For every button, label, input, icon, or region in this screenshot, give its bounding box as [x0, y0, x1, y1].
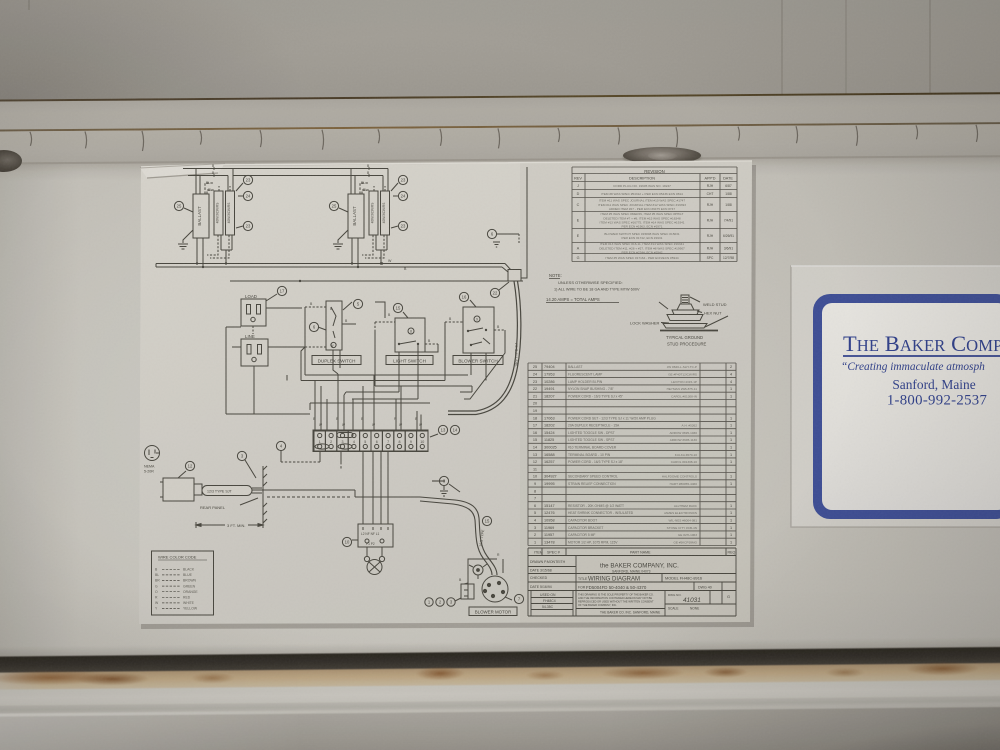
svg-text:7: 7 — [534, 497, 536, 501]
svg-text:LIGHTED TOGGLE SW - DPST: LIGHTED TOGGLE SW - DPST — [568, 431, 615, 435]
svg-text:HEX NUT: HEX NUT — [704, 311, 722, 316]
svg-text:PER ECN #1963, ECN #1971: PER ECN #1963, ECN #1971 — [622, 225, 663, 229]
svg-text:UNLESS OTHERWISE SPECIFIED:: UNLESS OTHERWISE SPECIFIED: — [558, 280, 623, 285]
svg-text:1/88: 1/88 — [725, 192, 732, 196]
svg-text:ITEM #8 WAS SPEC #54312 + PER: ITEM #8 WAS SPEC #54312 + PER ECN #5436 … — [601, 192, 683, 196]
svg-text:12: 12 — [188, 464, 193, 469]
svg-text:18: 18 — [533, 416, 537, 420]
svg-text:20A DUPLEX RECEPTACLE - 15A: 20A DUPLEX RECEPTACLE - 15A — [568, 424, 620, 428]
svg-text:18/3 TYPE SJ: 18/3 TYPE SJ — [515, 343, 519, 367]
svg-text:40W/3/CW/RS: 40W/3/CW/RS — [371, 203, 375, 224]
svg-text:B: B — [336, 417, 338, 421]
svg-text:A.H. #5262: A.H. #5262 — [682, 424, 698, 428]
svg-text:SECONDARY SPEED CONTROL: SECONDARY SPEED CONTROL — [568, 475, 618, 479]
svg-text:1: 1 — [730, 424, 732, 428]
svg-text:1: 1 — [730, 533, 732, 537]
svg-text:DUPLEX SWITCH: DUPLEX SWITCH — [318, 358, 356, 363]
svg-text:25: 25 — [533, 365, 537, 369]
svg-text:19491: 19491 — [544, 387, 555, 391]
svg-text:15147: 15147 — [544, 504, 555, 508]
svg-text:BLOWER MOTOR: BLOWER MOTOR — [475, 610, 512, 615]
svg-text:WIL-NES #6004-081: WIL-NES #6004-081 — [668, 519, 697, 523]
svg-text:#10 TERMINAL BOARD COVER: #10 TERMINAL BOARD COVER — [568, 446, 617, 450]
svg-text:MODEL FH48C-8916: MODEL FH48C-8916 — [665, 576, 702, 581]
svg-text:40W/3/CW/RS: 40W/3/CW/RS — [227, 203, 231, 224]
svg-text:ITEM #5 WAS SPEC #17164 - PER: ITEM #5 WAS SPEC #17164 - PER ECN/ECN #5… — [605, 256, 679, 260]
svg-text:POWER CORD - 16/3 TYPE SJ x 18: POWER CORD - 16/3 TYPE SJ x 18" — [568, 460, 624, 464]
svg-text:BL: BL — [155, 573, 159, 577]
svg-text:WELD STUD: WELD STUD — [703, 302, 727, 307]
svg-text:POWER CORD - 16/3 TYPE SJ x 45: POWER CORD - 16/3 TYPE SJ x 45" — [568, 394, 624, 398]
svg-text:16257: 16257 — [544, 460, 555, 464]
svg-text:300025: 300025 — [544, 446, 557, 450]
svg-text:18207: 18207 — [544, 394, 555, 398]
svg-text:11969: 11969 — [544, 526, 554, 530]
svg-text:LIGHTED TOGGLE SW - SPST: LIGHTED TOGGLE SW - SPST — [568, 438, 615, 442]
svg-text:ORANGE: ORANGE — [183, 590, 198, 594]
svg-text:HART #80055-4460: HART #80055-4460 — [670, 482, 698, 486]
svg-text:DESCRIPTION: DESCRIPTION — [629, 177, 655, 181]
svg-text:DATE 3/15/68: DATE 3/15/68 — [530, 569, 552, 573]
svg-text:RESISTOR - 20K OHMS @ 1/2 WATT: RESISTOR - 20K OHMS @ 1/2 WATT — [568, 504, 624, 508]
svg-text:TYPICAL GROUND: TYPICAL GROUND — [666, 335, 703, 340]
svg-text:TERMINAL BOARD - 10 PIN: TERMINAL BOARD - 10 PIN — [568, 453, 611, 457]
svg-text:RJH: RJH — [707, 234, 714, 238]
svg-text:the BAKER COMPANY, INC.: the BAKER COMPANY, INC. — [600, 563, 679, 570]
svg-text:23: 23 — [246, 224, 251, 229]
svg-text:YELLOW: YELLOW — [183, 607, 198, 611]
svg-text:10: 10 — [420, 440, 424, 444]
svg-text:SPEC #: SPEC # — [547, 550, 560, 554]
svg-text:JW #846-L-SLH-TC-P: JW #846-L-SLH-TC-P — [667, 365, 697, 369]
svg-text:DRAWN P.MONTEITH: DRAWN P.MONTEITH — [530, 560, 566, 564]
svg-text:Sanford, Maine: Sanford, Maine — [892, 377, 975, 392]
svg-text:23: 23 — [533, 380, 537, 384]
svg-text:14: 14 — [453, 428, 458, 433]
svg-text:1: 1 — [534, 540, 536, 544]
svg-text:1: 1 — [730, 394, 732, 398]
svg-text:16: 16 — [462, 295, 467, 300]
svg-text:4: 4 — [534, 519, 536, 523]
svg-text:BLUE: BLUE — [183, 573, 193, 577]
svg-text:W: W — [419, 423, 422, 427]
svg-text:CAPACITOR BOOT: CAPACITOR BOOT — [568, 519, 597, 523]
svg-text:GE #5KCP39MG: GE #5KCP39MG — [673, 540, 697, 544]
svg-text:REV: REV — [574, 177, 582, 181]
svg-text:1: 1 — [730, 446, 732, 450]
svg-text:W: W — [399, 423, 402, 427]
svg-text:9: 9 — [410, 440, 412, 444]
svg-text:4: 4 — [730, 373, 732, 377]
svg-text:20: 20 — [533, 402, 537, 406]
svg-text:1: 1 — [730, 540, 732, 544]
svg-text:1: 1 — [730, 526, 732, 530]
svg-text:18202: 18202 — [544, 424, 555, 428]
svg-text:12476: 12476 — [544, 511, 555, 515]
svg-text:1-800-992-2537: 1-800-992-2537 — [887, 393, 987, 409]
svg-text:GE #27L1063: GE #27L1063 — [678, 533, 697, 537]
svg-text:6/26/91: 6/26/91 — [723, 234, 734, 238]
svg-text:9: 9 — [476, 318, 478, 322]
svg-text:MOTOR 1/2 HP, 1075 RPM, 115V: MOTOR 1/2 HP, 1075 RPM, 115V — [568, 540, 618, 544]
svg-text:1: 1 — [730, 519, 732, 523]
svg-text:BALLAST: BALLAST — [352, 206, 357, 226]
svg-text:21: 21 — [533, 394, 537, 398]
svg-text:1) ALL WIRE TO BE 18 GA AND TY: 1) ALL WIRE TO BE 18 GA AND TYPE MTW 600… — [554, 288, 640, 292]
svg-text:G: G — [155, 584, 158, 588]
svg-text:CAROL #01308-IN: CAROL #01308-IN — [671, 394, 697, 398]
svg-text:25: 25 — [332, 204, 337, 209]
svg-text:12/3 TYPE SJT: 12/3 TYPE SJT — [207, 490, 233, 494]
svg-text:1: 1 — [319, 440, 321, 444]
svg-text:3 FT. MIN.: 3 FT. MIN. — [227, 523, 245, 528]
svg-text:40W/3/CW/RS: 40W/3/CW/RS — [382, 203, 386, 224]
svg-text:15: 15 — [396, 306, 401, 311]
svg-text:14: 14 — [533, 446, 537, 450]
svg-text:CAPACITOR BRACKET: CAPACITOR BRACKET — [568, 526, 603, 530]
svg-text:NOTE:: NOTE: — [549, 273, 562, 278]
svg-text:LOCK WASHER: LOCK WASHER — [630, 321, 660, 326]
svg-text:BL: BL — [208, 188, 212, 192]
svg-text:CHECKED: CHECKED — [530, 576, 548, 580]
svg-text:W: W — [372, 423, 375, 427]
svg-text:PART NAME: PART NAME — [630, 550, 651, 554]
svg-text:1: 1 — [730, 511, 732, 515]
svg-text:REPRODUCED OR USED WITHOUT THE: REPRODUCED OR USED WITHOUT THE WRITTEN C… — [578, 600, 654, 604]
svg-text:BL: BL — [361, 181, 365, 185]
svg-text:24: 24 — [533, 373, 537, 377]
svg-text:PER ECN #2744, ECN #2942: PER ECN #2744, ECN #2942 — [622, 251, 663, 255]
svg-text:BLOWER SWITCH: BLOWER SWITCH — [458, 358, 497, 363]
svg-text:W: W — [319, 423, 322, 427]
svg-text:16588: 16588 — [544, 453, 555, 457]
svg-text:ALLTHEM RA0C: ALLTHEM RA0C — [674, 504, 698, 508]
svg-text:15: 15 — [533, 438, 537, 442]
svg-text:11: 11 — [533, 467, 537, 471]
svg-text:O: O — [155, 590, 158, 594]
svg-text:D: D — [577, 192, 580, 196]
svg-text:1: 1 — [730, 504, 732, 508]
svg-text:DWG 40: DWG 40 — [698, 586, 712, 590]
svg-text:BLACK: BLACK — [183, 568, 195, 572]
svg-text:17: 17 — [533, 424, 537, 428]
svg-text:6: 6 — [534, 504, 536, 508]
svg-text:13: 13 — [533, 453, 537, 457]
svg-text:FD5004FD 50-4040 & 50-4370: FD5004FD 50-4040 & 50-4370 — [586, 585, 647, 590]
svg-text:C: C — [577, 203, 580, 207]
svg-text:10286: 10286 — [544, 380, 555, 384]
svg-text:2: 2 — [330, 440, 332, 444]
svg-text:NONE: NONE — [690, 607, 699, 611]
svg-text:SANFORD, MAINE 04073: SANFORD, MAINE 04073 — [612, 570, 651, 574]
svg-text:POWER CORD SET - 12/3 TYPE SJ: POWER CORD SET - 12/3 TYPE SJ x 11' W/20… — [568, 416, 656, 420]
svg-text:THIS DRAWING IS THE SOLE PROPE: THIS DRAWING IS THE SOLE PROPERTY OF THE… — [578, 593, 654, 597]
svg-text:WHITE: WHITE — [183, 601, 195, 605]
svg-text:8: 8 — [534, 489, 536, 493]
svg-text:B: B — [361, 417, 363, 421]
svg-text:G: G — [727, 594, 730, 599]
svg-text:12/7/98: 12/7/98 — [723, 256, 734, 260]
svg-text:STUD PROCEDURE: STUD PROCEDURE — [667, 342, 707, 347]
svg-text:RED: RED — [183, 596, 191, 600]
svg-text:RJH: RJH — [707, 219, 714, 223]
svg-text:BALLAST: BALLAST — [197, 206, 202, 226]
svg-text:9: 9 — [534, 482, 536, 486]
svg-text:24: 24 — [246, 194, 251, 199]
svg-text:ARROW #695-1130: ARROW #695-1130 — [670, 438, 698, 442]
svg-text:1: 1 — [730, 438, 732, 442]
svg-text:23: 23 — [401, 224, 406, 229]
svg-text:AND THE INFORMATION CONTAINED: AND THE INFORMATION CONTAINED HEREON MAY… — [578, 596, 652, 600]
svg-text:DATE 5/16/94: DATE 5/16/94 — [530, 585, 552, 589]
svg-text:1: 1 — [730, 416, 732, 420]
svg-text:1: 1 — [730, 475, 732, 479]
svg-text:KULKA #670-10: KULKA #670-10 — [675, 453, 697, 457]
svg-text:REAR PANEL: REAR PANEL — [200, 505, 226, 510]
svg-text:17063: 17063 — [544, 416, 555, 420]
svg-text:STONE CITY #CB-4N: STONE CITY #CB-4N — [667, 526, 697, 530]
svg-text:LIGHT SWITCH: LIGHT SWITCH — [393, 358, 426, 363]
svg-text:1: 1 — [730, 453, 732, 457]
svg-text:G: G — [577, 256, 580, 260]
svg-text:TITLE: TITLE — [578, 577, 588, 581]
svg-text:13: 13 — [441, 428, 446, 433]
svg-text:WIRING DIAGRAM: WIRING DIAGRAM — [588, 577, 640, 583]
svg-text:1/88: 1/88 — [725, 203, 732, 207]
svg-text:FOR: FOR — [578, 586, 586, 590]
svg-text:6: 6 — [376, 440, 378, 444]
svg-text:40W/3/CW/RS: 40W/3/CW/RS — [216, 203, 220, 224]
svg-text:BALLAST: BALLAST — [568, 365, 582, 369]
svg-text:REVISION: REVISION — [644, 169, 665, 174]
svg-text:19995: 19995 — [544, 482, 555, 486]
svg-text:CAPACITOR 5 MF: CAPACITOR 5 MF — [568, 533, 595, 537]
svg-text:CAROL #01308-10: CAROL #01308-10 — [671, 460, 697, 464]
svg-text:W: W — [330, 344, 333, 348]
svg-text:ITEM: ITEM — [534, 550, 543, 554]
svg-text:22: 22 — [533, 387, 537, 391]
svg-text:LEVITON 4315-1P: LEVITON 4315-1P — [671, 380, 697, 384]
svg-text:CHT: CHT — [707, 192, 714, 196]
svg-text:15: 15 — [485, 519, 490, 524]
svg-text:15424: 15424 — [544, 431, 555, 435]
svg-text:B: B — [415, 417, 417, 421]
svg-text:APP'D: APP'D — [704, 177, 715, 181]
svg-text:11957: 11957 — [544, 533, 554, 537]
svg-text:6/87: 6/87 — [725, 184, 732, 188]
svg-text:REQ: REQ — [728, 550, 736, 554]
svg-text:3: 3 — [534, 526, 536, 530]
svg-text:W: W — [342, 423, 345, 427]
svg-text:HALFDOME CONTROLS: HALFDOME CONTROLS — [662, 475, 697, 479]
svg-text:17: 17 — [280, 289, 285, 294]
svg-text:USED ON: USED ON — [540, 593, 556, 597]
svg-text:10958: 10958 — [544, 519, 555, 523]
svg-text:FH48C4: FH48C4 — [543, 599, 556, 603]
svg-text:10: 10 — [533, 475, 537, 479]
svg-text:14.20 AMPS = TOTAL AMPS: 14.20 AMPS = TOTAL AMPS — [546, 297, 600, 302]
svg-text:12: 12 — [533, 460, 537, 464]
svg-text:ARROW #695-1030: ARROW #695-1030 — [669, 431, 697, 435]
svg-text:B: B — [313, 417, 315, 421]
svg-text:WIRE COLOR CODE: WIRE COLOR CODE — [158, 555, 197, 560]
svg-text:HEAT SHRINK CONNECTOR - INSULA: HEAT SHRINK CONNECTOR - INSULATED — [568, 511, 634, 515]
svg-text:BL: BL — [206, 181, 210, 185]
svg-text:LOAD: LOAD — [245, 294, 257, 299]
svg-text:CORD PLUG NO. 19605 WAS NO. 18: CORD PLUG NO. 19605 WAS NO. 18247 — [613, 184, 671, 188]
svg-text:J: J — [577, 184, 579, 188]
svg-text:8: 8 — [399, 440, 401, 444]
svg-text:PER ECN #1742, ECN #1931: PER ECN #1742, ECN #1931 — [622, 236, 663, 240]
svg-text:2: 2 — [730, 365, 732, 369]
svg-text:THE BAKER CO. INC. SANFORD, MA: THE BAKER CO. INC. SANFORD, MAINE — [600, 611, 660, 615]
svg-text:DWG NO.: DWG NO. — [668, 593, 682, 597]
svg-text:54-35C: 54-35C — [542, 605, 554, 609]
svg-text:RJH: RJH — [707, 247, 714, 251]
svg-text:“Creating immaculate atmosph: “Creating immaculate atmosph — [841, 361, 985, 373]
svg-text:1: 1 — [730, 482, 732, 486]
svg-text:LINE: LINE — [245, 334, 255, 339]
svg-text:16: 16 — [533, 431, 537, 435]
svg-text:SPC: SPC — [707, 256, 714, 260]
svg-text:8: 8 — [410, 330, 412, 334]
svg-text:NEMA: NEMA — [144, 465, 155, 469]
svg-text:22: 22 — [493, 291, 498, 296]
svg-text:5: 5 — [534, 511, 536, 515]
svg-text:RJH: RJH — [707, 203, 714, 207]
svg-text:1: 1 — [730, 431, 732, 435]
svg-text:5: 5 — [364, 440, 366, 444]
svg-text:25: 25 — [177, 204, 182, 209]
svg-text:10: 10 — [345, 540, 350, 545]
svg-text:FLUORESCENT LAMP: FLUORESCENT LAMP — [568, 373, 603, 377]
svg-text:LAMP HOLDER BI-PIN: LAMP HOLDER BI-PIN — [568, 380, 603, 384]
svg-text:STRAIN RELIEF CONNECTION: STRAIN RELIEF CONNECTION — [568, 482, 616, 486]
svg-text:23: 23 — [246, 178, 251, 183]
svg-text:JAMES ELECTRONICS: JAMES ELECTRONICS — [664, 511, 697, 515]
svg-text:13478: 13478 — [544, 540, 555, 544]
svg-text:1: 1 — [730, 460, 732, 464]
svg-text:SCALE: SCALE — [668, 607, 678, 611]
svg-text:W: W — [388, 259, 392, 263]
svg-text:4: 4 — [730, 380, 732, 384]
svg-text:23: 23 — [401, 178, 406, 183]
svg-text:BL: BL — [363, 188, 367, 192]
svg-text:7/4/91: 7/4/91 — [724, 219, 733, 223]
svg-text:DATE: DATE — [723, 177, 733, 181]
svg-text:HEYMAN 2SB-875-11: HEYMAN 2SB-875-11 — [667, 387, 698, 391]
svg-text:OF THE BAKER COMPANY, INC.: OF THE BAKER COMPANY, INC. — [578, 603, 617, 607]
svg-text:P1 P2: P1 P2 — [366, 542, 375, 546]
svg-text:BROWN: BROWN — [183, 579, 197, 583]
svg-text:41031: 41031 — [683, 597, 701, 604]
svg-text:GREEN: GREEN — [183, 584, 196, 588]
svg-text:19: 19 — [533, 409, 537, 413]
svg-text:ADDED ITEM #27 - PER ECN #9475: ADDED ITEM #27 - PER ECN #9475 ECN #747 — [609, 207, 675, 211]
svg-text:NYLON SNAP BUSHING - 7/8": NYLON SNAP BUSHING - 7/8" — [568, 387, 615, 391]
svg-text:7: 7 — [387, 440, 389, 444]
svg-text:17953: 17953 — [544, 373, 555, 377]
svg-text:3/6/91: 3/6/91 — [724, 247, 733, 251]
svg-text:24: 24 — [401, 194, 406, 199]
svg-text:1: 1 — [730, 387, 732, 391]
svg-text:BR: BR — [155, 579, 160, 583]
svg-text:RJH: RJH — [707, 184, 714, 188]
svg-text:L2 NF NF L1: L2 NF NF L1 — [361, 532, 379, 536]
svg-text:79404: 79404 — [544, 365, 555, 369]
svg-text:5-20R: 5-20R — [144, 470, 154, 474]
svg-text:2: 2 — [534, 533, 536, 537]
svg-text:304927: 304927 — [544, 475, 557, 479]
svg-text:GE #F40T12/CW/RS: GE #F40T12/CW/RS — [668, 373, 697, 377]
svg-text:3: 3 — [342, 440, 344, 444]
svg-text:4: 4 — [353, 440, 355, 444]
svg-text:11825: 11825 — [544, 438, 554, 442]
